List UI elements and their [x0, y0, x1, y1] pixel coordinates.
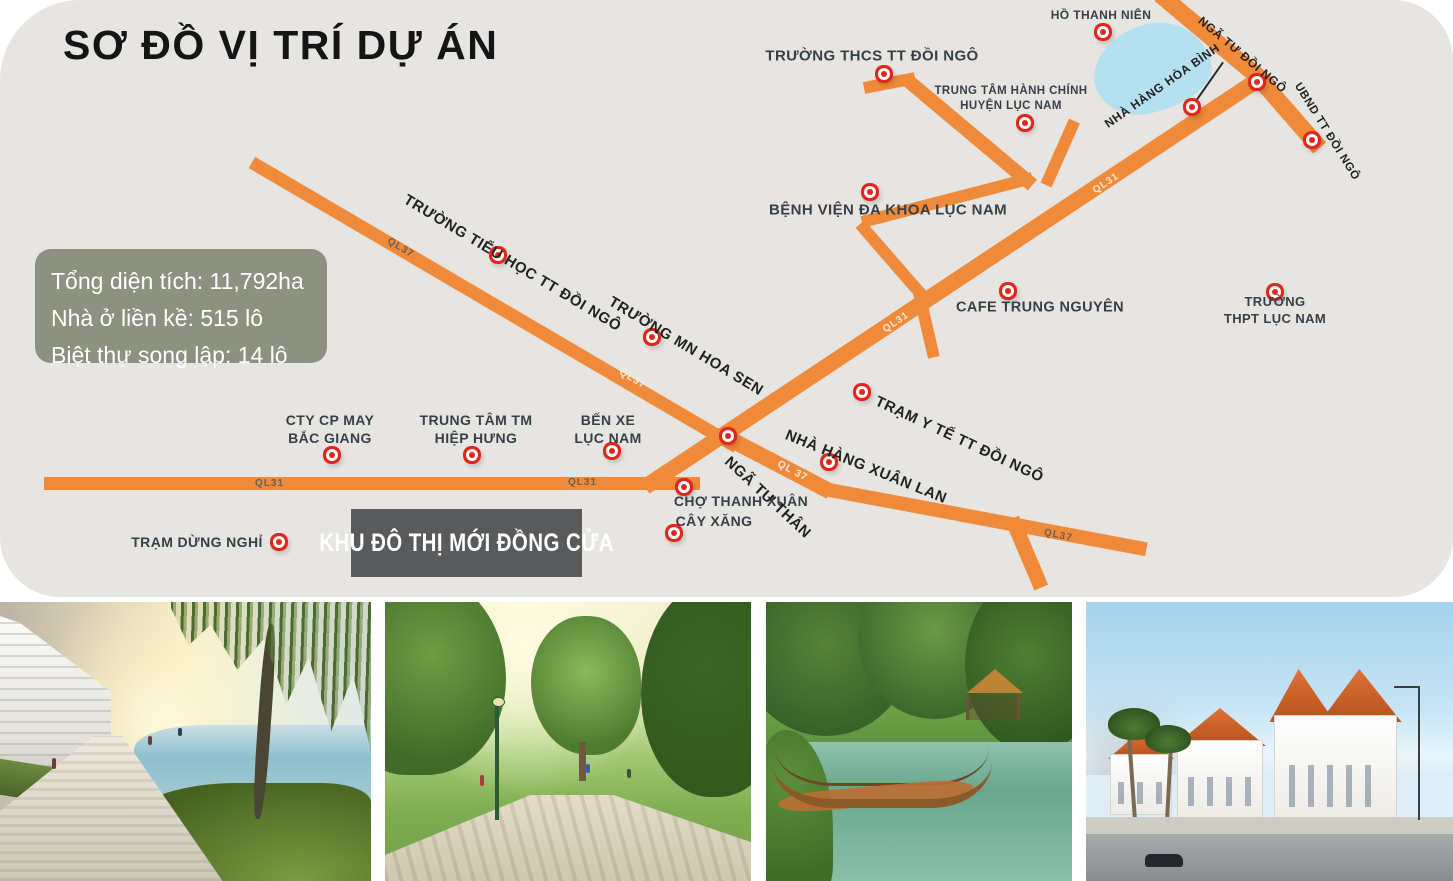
- marker-tram-dung-nghi: [276, 539, 282, 545]
- label-truong-thpt: TRƯỜNG THPT LỤC NAM: [1224, 294, 1326, 328]
- sidewalk: [1086, 817, 1453, 834]
- map-panel: QL37 QL37 QL31 QL31 QL 37 QL37 QL31 QL31…: [0, 0, 1453, 597]
- photo-central-park: [385, 602, 751, 881]
- pedestrian: [178, 728, 182, 736]
- park-visitor: [480, 775, 484, 786]
- road-branch-connector: [1041, 119, 1080, 188]
- villa-roof: [1270, 669, 1402, 722]
- car: [1145, 854, 1183, 867]
- photo-villa-street: [1086, 602, 1453, 881]
- road-label-ql31-4: QL31: [568, 477, 597, 488]
- marker-benh-vien: [867, 189, 873, 195]
- street-lamp: [1418, 686, 1420, 820]
- tree-trunk: [579, 742, 586, 781]
- marker-ho-thanh-nien: [1100, 29, 1106, 35]
- marker-cay-xang: [671, 530, 677, 536]
- villa-body: [1275, 716, 1397, 825]
- project-name-box: KHU ĐÔ THỊ MỚI ĐỒNG CỬA: [351, 509, 582, 577]
- label-trung-tam-hanh-chinh: TRUNG TÂM HÀNH CHÍNH HUYỆN LỤC NAM: [934, 84, 1087, 114]
- wooden-bridge: [772, 716, 992, 809]
- villa-middle: [1174, 708, 1266, 820]
- gazebo-roof: [967, 669, 1023, 693]
- stat-total-area: Tổng diện tích: 11,792ha: [51, 263, 327, 300]
- marker-nga-tu-than: [725, 433, 731, 439]
- marker-nga-tu-doi-ngo: [1254, 79, 1260, 85]
- label-tram-dung-nghi: TRẠM DỪNG NGHỈ: [131, 533, 263, 551]
- marker-trung-tam-hanh-chinh: [1022, 120, 1028, 126]
- label-ben-xe: BẾN XE LỤC NAM: [574, 411, 641, 447]
- gazebo: [966, 694, 1020, 720]
- marker-nha-hang-hoa-binh: [1189, 104, 1195, 110]
- villa-windows: [1289, 765, 1381, 807]
- project-name: KHU ĐÔ THỊ MỚI ĐỒNG CỬA: [319, 529, 613, 558]
- road-branch-hospital: [855, 220, 930, 303]
- park-visitor: [586, 764, 590, 773]
- marker-cafe-trung-nguyen: [1005, 288, 1011, 294]
- label-cty-cp-may: CTY CP MAY BẮC GIANG: [286, 411, 375, 447]
- marker-ben-xe: [609, 448, 615, 454]
- road-ql37-lower: [823, 482, 1148, 556]
- marker-ubnd: [1309, 137, 1315, 143]
- marker-tram-y-te: [859, 389, 865, 395]
- tree: [531, 616, 641, 756]
- villa-windows: [1118, 782, 1164, 804]
- park-visitor: [627, 769, 631, 778]
- villa-body: [1111, 755, 1172, 814]
- page-title: SƠ ĐỒ VỊ TRÍ DỰ ÁN: [63, 22, 498, 69]
- label-benh-vien: BỆNH VIỆN ĐA KHOA LỤC NAM: [769, 200, 1007, 220]
- stat-villas: Biệt thự song lập: 14 lô: [51, 337, 327, 374]
- road-ql31-horizontal: [44, 477, 700, 490]
- label-cafe-trung-nguyen: CAFE TRUNG NGUYÊN: [956, 299, 1124, 318]
- photo-lakeside-promenade: [0, 602, 371, 881]
- photo-canal-bridge-gazebo: [766, 602, 1072, 881]
- villa-near: [1270, 669, 1402, 825]
- pedestrian: [148, 736, 152, 745]
- villa-windows: [1188, 777, 1252, 807]
- project-location-flyer: QL37 QL37 QL31 QL31 QL 37 QL37 QL31 QL31…: [0, 0, 1453, 881]
- road-label-ql31-3: QL31: [255, 478, 284, 489]
- pedestrian: [52, 758, 56, 769]
- label-cay-xang: CÂY XĂNG: [676, 512, 753, 530]
- marker-truong-thcs: [881, 71, 887, 77]
- project-stats-box: Tổng diện tích: 11,792ha Nhà ở liền kề: …: [35, 249, 327, 363]
- marker-trung-tam-tm: [469, 452, 475, 458]
- marker-cty-cp-may: [329, 452, 335, 458]
- marker-cho-thanh-xuan: [681, 484, 687, 490]
- palm-tree: [1145, 725, 1191, 753]
- lamp-head: [492, 697, 505, 707]
- street: [1086, 834, 1453, 881]
- stat-townhouses: Nhà ở liền kề: 515 lô: [51, 300, 327, 337]
- lamp-post: [495, 702, 499, 819]
- street-lamp-arm: [1394, 686, 1420, 688]
- label-ho-thanh-nien: HỒ THANH NIÊN: [1051, 8, 1152, 24]
- label-truong-thcs: TRƯỜNG THCS TT ĐỒI NGÔ: [765, 46, 978, 66]
- villa-body: [1178, 741, 1262, 819]
- label-trung-tam-tm: TRUNG TÂM TM HIỆP HƯNG: [420, 411, 533, 447]
